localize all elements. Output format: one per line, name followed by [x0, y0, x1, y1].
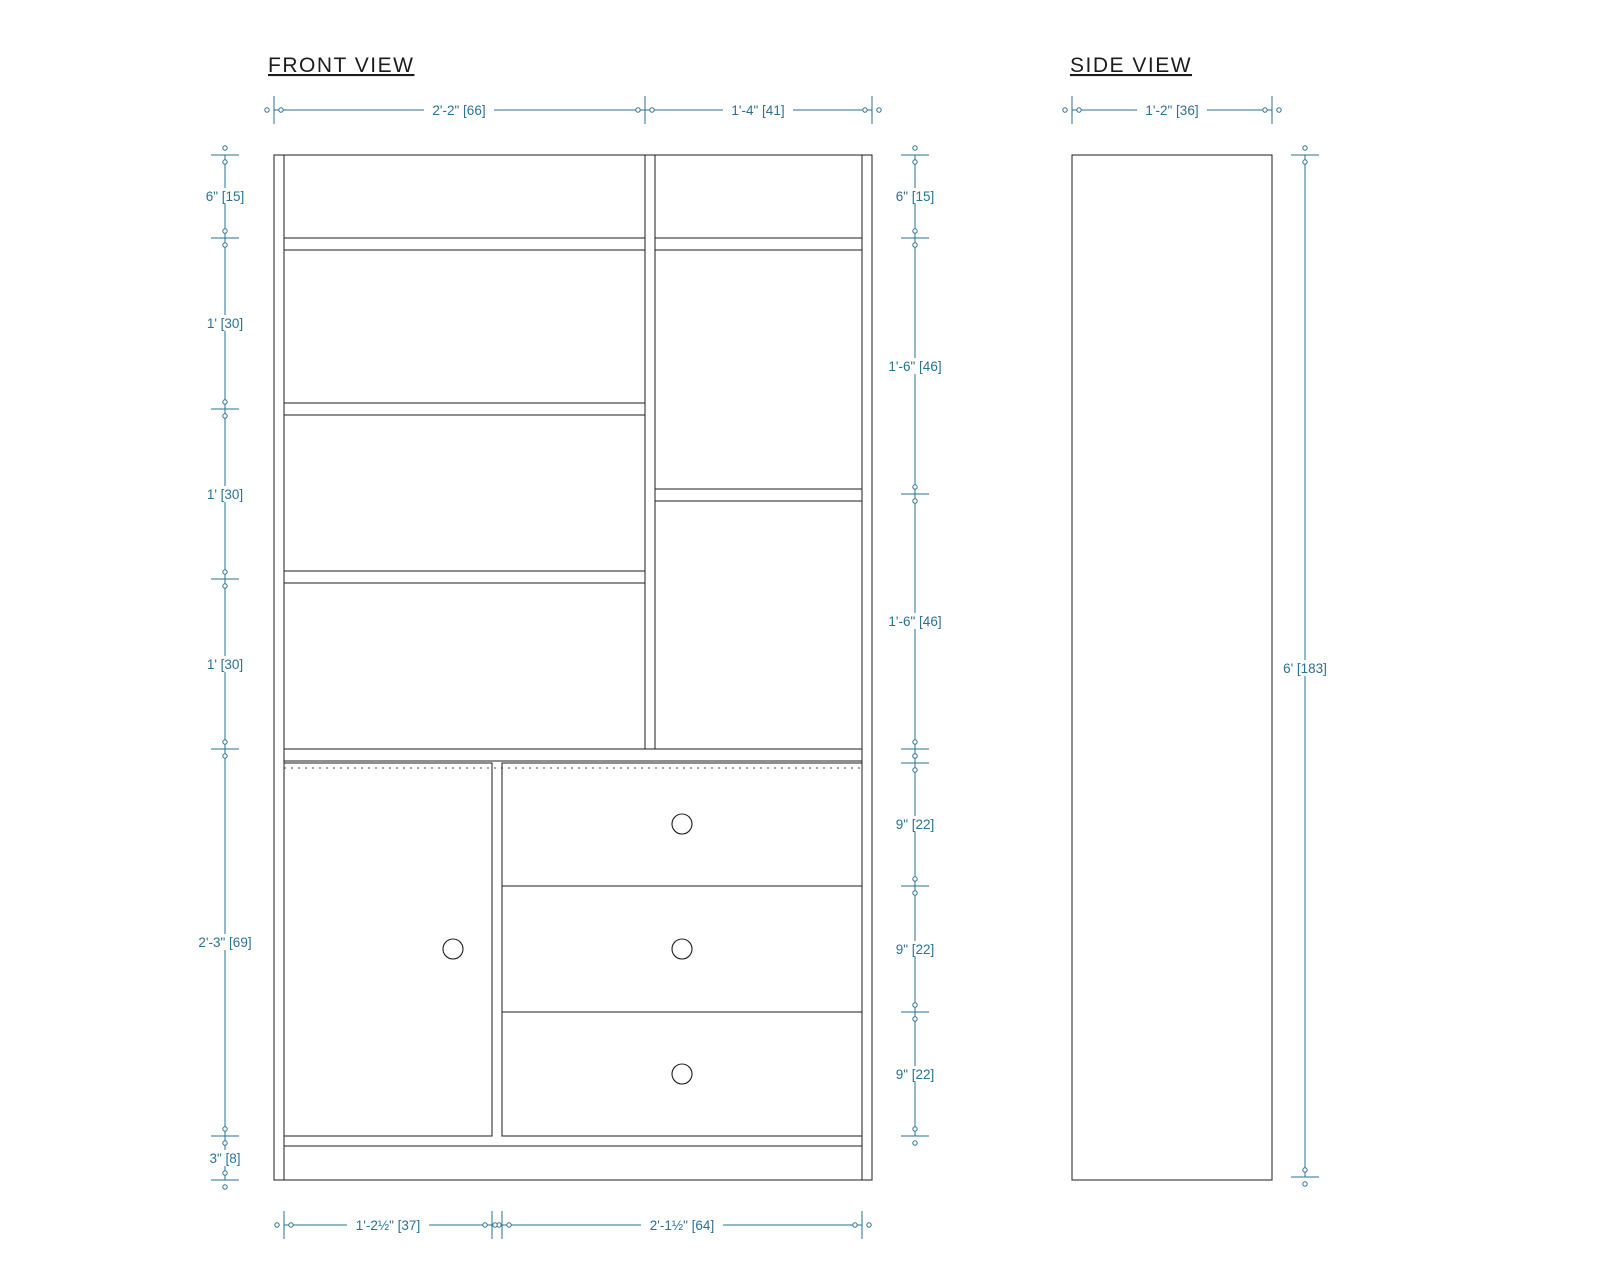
dim-tick-dot — [493, 1223, 497, 1227]
dim-tick-dot — [223, 584, 227, 588]
dim-tick-dot — [913, 499, 917, 503]
left-column-shelves — [284, 238, 645, 583]
dim-tick-dot — [913, 229, 917, 233]
dimension-label: 6" [15] — [896, 189, 935, 204]
dim-tick-dot — [877, 108, 881, 112]
dimension-label: 1'-4" [41] — [731, 103, 784, 118]
dimension-label: 1' [30] — [207, 657, 243, 672]
dim-tick-dot — [913, 1003, 917, 1007]
dim-tick-dot — [275, 1223, 279, 1227]
dim-tick-dot — [223, 1185, 227, 1189]
dim-tick-dot — [223, 1171, 227, 1175]
center-divider — [645, 155, 655, 749]
dim-tick-dot — [265, 108, 269, 112]
dim-tick-dot — [1303, 160, 1307, 164]
dimension-label: 3" [8] — [209, 1151, 240, 1166]
dimension-label: 1' [30] — [207, 316, 243, 331]
dimension-labels: 2'-2" [66] 1'-4" [41] 6" [15] 1' [30] 1'… — [189, 102, 1334, 1233]
dim-tick-dot — [279, 108, 283, 112]
dimension-label: 2'-2" [66] — [432, 103, 485, 118]
dim-tick-dot — [913, 146, 917, 150]
dim-tick-dot — [1263, 108, 1267, 112]
dim-tick-dot — [650, 108, 654, 112]
knobs — [443, 814, 692, 1084]
dimension-label: 1'-2½" [37] — [356, 1218, 420, 1233]
dimension-lines — [211, 96, 1319, 1239]
dim-tick-dot — [1277, 108, 1281, 112]
dim-tick-dot — [1303, 146, 1307, 150]
dim-tick-dot — [913, 243, 917, 247]
fixed-shelf-band — [284, 749, 862, 761]
drawer-knob — [672, 1064, 692, 1084]
dim-tick-dot — [913, 740, 917, 744]
dim-tick-dot — [913, 891, 917, 895]
dimension-label: 9" [22] — [896, 817, 935, 832]
dimension-label: 2'-3" [69] — [198, 935, 251, 950]
dim-tick-dot — [223, 160, 227, 164]
dim-tick-dot — [913, 485, 917, 489]
dim-tick-dot — [483, 1223, 487, 1227]
dim-tick-dot — [223, 740, 227, 744]
dim-tick-dot — [863, 108, 867, 112]
dim-tick-dot — [1303, 1168, 1307, 1172]
dimension-label: 1'-6" [46] — [888, 614, 941, 629]
dim-tick-dot — [867, 1223, 871, 1227]
dim-tick-dot — [223, 414, 227, 418]
dim-tick-dot — [1063, 108, 1067, 112]
front-view-drawing — [274, 155, 872, 1180]
dimension-label: 9" [22] — [896, 1067, 935, 1082]
dim-tick-dot — [1303, 1182, 1307, 1186]
dimension-label: 1' [30] — [207, 487, 243, 502]
drawer-knob — [672, 939, 692, 959]
side-view-drawing — [1072, 155, 1272, 1180]
dim-tick-dot — [913, 768, 917, 772]
dimension-label: 1'-2" [36] — [1145, 103, 1198, 118]
dim-tick-dot — [223, 570, 227, 574]
right-column-shelves — [655, 238, 862, 501]
dim-tick-dot — [913, 160, 917, 164]
drawer-knob — [672, 814, 692, 834]
dim-tick-dot — [913, 1127, 917, 1131]
dim-tick-dot — [223, 1127, 227, 1131]
door-knob — [443, 939, 463, 959]
side-view-title: SIDE VIEW — [1070, 54, 1192, 77]
dim-tick-dot — [289, 1223, 293, 1227]
dimension-label: 1'-6" [46] — [888, 359, 941, 374]
dim-tick-dot — [223, 146, 227, 150]
dim-tick-dot — [913, 754, 917, 758]
cabinet-outer-outline — [274, 155, 872, 1180]
dimension-label: 6' [183] — [1283, 661, 1327, 676]
dim-tick-dot — [223, 754, 227, 758]
dimension-label: 6" [15] — [206, 189, 245, 204]
dim-tick-dot — [913, 877, 917, 881]
cad-drawing-canvas: FRONT VIEW SIDE VIEW — [0, 0, 1600, 1280]
dimension-label: 9" [22] — [896, 942, 935, 957]
dim-tick-dot — [223, 229, 227, 233]
dim-tick-dot — [223, 243, 227, 247]
dim-tick-dot — [507, 1223, 511, 1227]
dim-tick-dot — [223, 400, 227, 404]
dim-tick-dot — [913, 1017, 917, 1021]
dimension-tick-marks — [211, 96, 1319, 1239]
dim-tick-dot — [913, 1141, 917, 1145]
dimension-label: 2'-1½" [64] — [650, 1218, 714, 1233]
dim-tick-dot — [853, 1223, 857, 1227]
cad-drawing-page: FRONT VIEW SIDE VIEW — [0, 0, 1600, 1280]
side-view-outline — [1072, 155, 1272, 1180]
dim-tick-dot — [636, 108, 640, 112]
dim-tick-dot — [1077, 108, 1081, 112]
dim-tick-dot — [223, 1141, 227, 1145]
front-view-title: FRONT VIEW — [268, 54, 414, 77]
